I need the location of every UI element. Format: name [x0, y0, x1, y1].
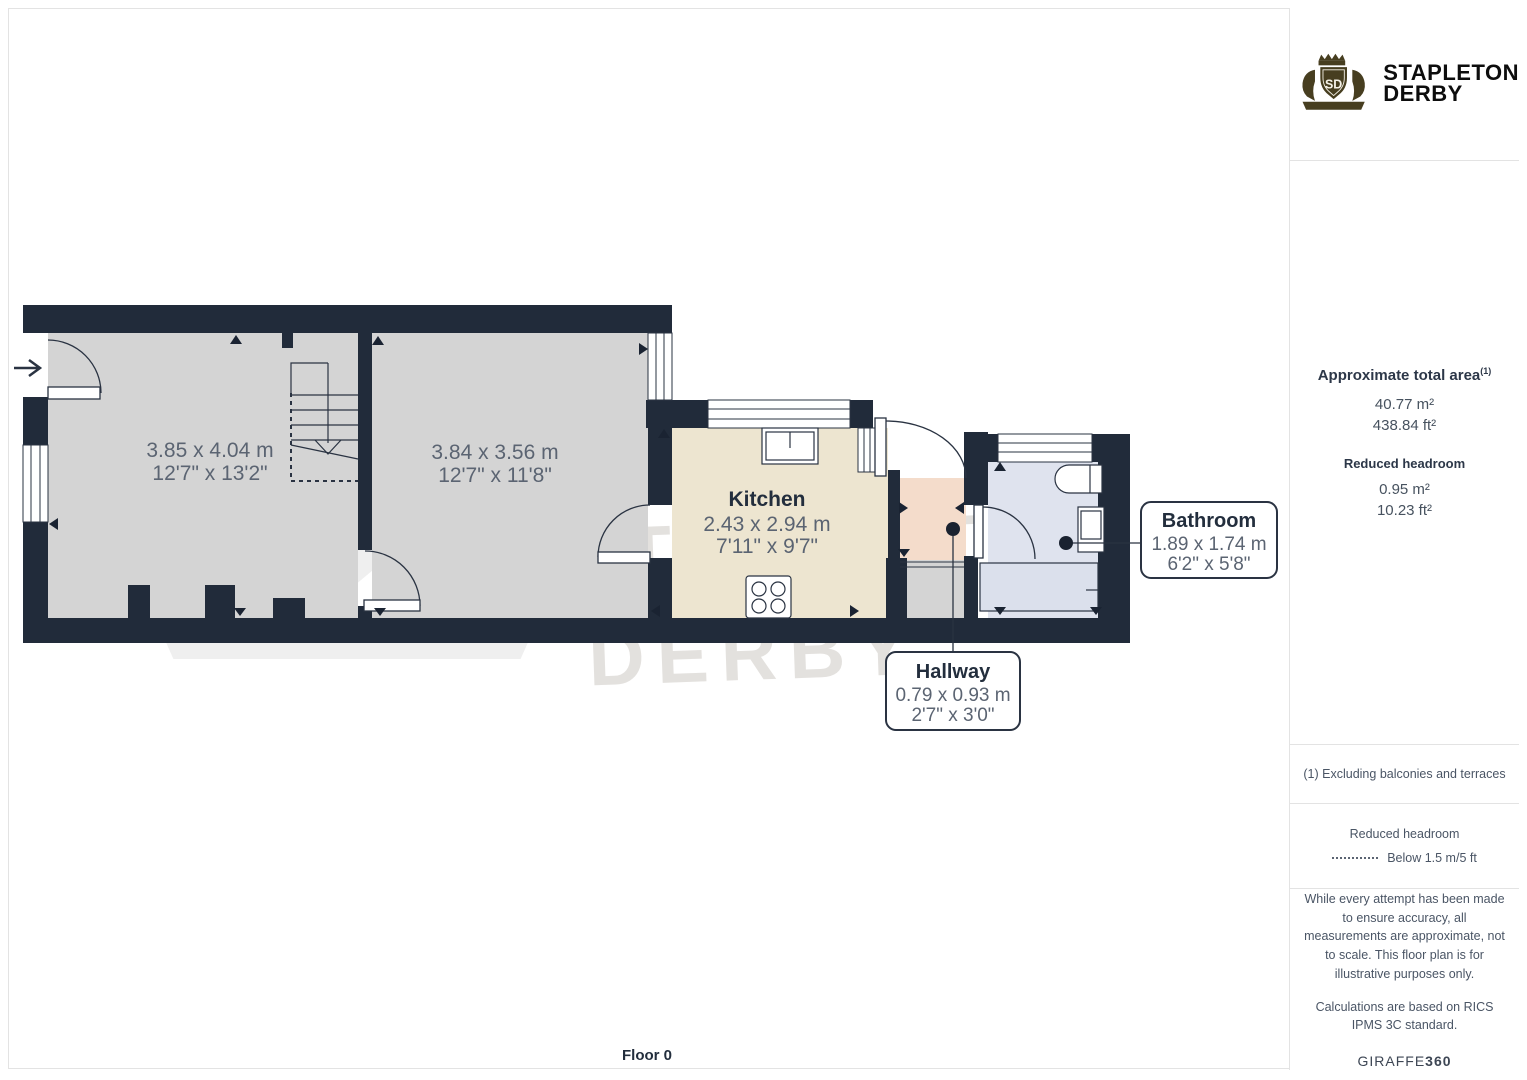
disclaimer-accuracy: While every attempt has been made to ens… — [1302, 890, 1507, 984]
brand-crest-logo: SD — [1290, 52, 1377, 116]
hallway-dims-m: 0.79 x 0.93 m — [895, 685, 1010, 706]
door-hallway-exterior — [875, 418, 966, 478]
legend-item-label: Below 1.5 m/5 ft — [1387, 851, 1477, 865]
kitchen-sink — [762, 428, 818, 464]
area-title-footnote: (1) — [1480, 366, 1491, 376]
window-kitchen-right — [858, 428, 876, 472]
area-section: Approximate total area(1) 40.77 m² 438.8… — [1290, 161, 1519, 745]
hallway-label-box: Hallway 0.79 x 0.93 m 2'7" x 3'0" — [886, 652, 1020, 730]
logo-section: SD STAPLETON DERBY — [1290, 8, 1519, 161]
giraffe360-brand: GIRAFFE360 — [1357, 1053, 1451, 1069]
bathroom-sink — [1078, 507, 1104, 552]
kitchen-dims-m: 2.43 x 2.94 m — [703, 513, 830, 536]
room2-dims-m: 3.84 x 3.56 m — [431, 441, 558, 464]
toilet — [1055, 465, 1102, 493]
bathroom-camera-dot — [1059, 536, 1073, 550]
total-area-m2: 40.77 m² — [1318, 394, 1492, 415]
area-title: Approximate total area(1) — [1318, 366, 1492, 384]
bathroom-name: Bathroom — [1162, 510, 1256, 532]
hallway-dims-ft: 2'7" x 3'0" — [911, 705, 994, 726]
shower — [980, 563, 1098, 611]
floor-label: Floor 0 — [622, 1047, 672, 1064]
brand-name: STAPLETON DERBY — [1383, 63, 1519, 105]
disclaimer-section: While every attempt has been made to ens… — [1290, 889, 1519, 1070]
floorplan-page: SD STAPLETON DERBY — [0, 0, 1527, 1080]
window-room1-left — [23, 445, 48, 522]
kitchen-dims-ft: 7'11" x 9'7" — [716, 535, 818, 558]
giraffe360-suffix: 360 — [1425, 1053, 1451, 1069]
giraffe360-name: GIRAFFE — [1357, 1053, 1425, 1069]
kitchen-hob — [746, 576, 791, 618]
window-room2-right — [648, 333, 672, 400]
crest-monogram: SD — [1325, 77, 1342, 91]
bathroom-dims-ft: 6'2" x 5'8" — [1167, 554, 1250, 575]
room1-dims-m: 3.85 x 4.04 m — [146, 439, 273, 462]
legend-item: Below 1.5 m/5 ft — [1332, 851, 1477, 865]
hallway-camera-dot — [946, 522, 960, 536]
room1-dims-ft: 12'7" x 13'2" — [152, 462, 267, 485]
total-area-ft2: 438.84 ft² — [1318, 415, 1492, 436]
reduced-area-ft2: 10.23 ft² — [1318, 500, 1492, 521]
entrance-arrow — [14, 360, 40, 376]
footnote-text: (1) Excluding balconies and terraces — [1303, 767, 1505, 781]
brand-line2: DERBY — [1383, 84, 1519, 105]
hallway-lower-floor — [900, 560, 964, 618]
window-kitchen-top — [708, 400, 850, 428]
kitchen-name: Kitchen — [728, 488, 805, 511]
info-sidebar: SD STAPLETON DERBY Approximate total are… — [1289, 8, 1519, 1070]
bathroom-label-box: Bathroom 1.89 x 1.74 m 6'2" x 5'8" — [1141, 502, 1277, 578]
footnote-section: (1) Excluding balconies and terraces — [1290, 745, 1519, 804]
hallway-name: Hallway — [916, 661, 991, 683]
room2-dims-ft: 12'7" x 11'8" — [438, 464, 552, 487]
legend-section: Reduced headroom Below 1.5 m/5 ft — [1290, 804, 1519, 889]
reduced-area-m2: 0.95 m² — [1318, 479, 1492, 500]
reduced-headroom-title: Reduced headroom — [1318, 456, 1492, 471]
window-bathroom-top — [998, 434, 1092, 462]
legend-title: Reduced headroom — [1350, 827, 1460, 841]
disclaimer-standard: Calculations are based on RICS IPMS 3C s… — [1302, 998, 1507, 1036]
dotted-line-sample — [1332, 857, 1378, 859]
bathroom-dims-m: 1.89 x 1.74 m — [1151, 534, 1266, 555]
